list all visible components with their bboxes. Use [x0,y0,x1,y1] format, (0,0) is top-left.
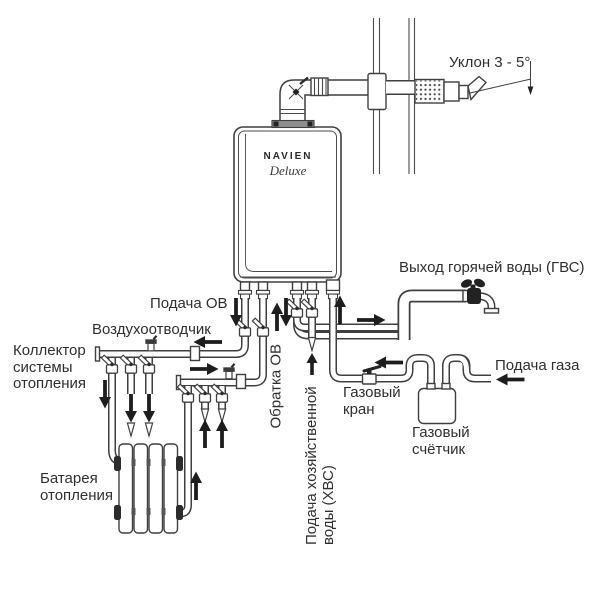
wall-flange [368,74,386,110]
gas-meter-icon [419,384,456,424]
air-vent-label: Воздухоотводчик [92,322,211,339]
diagram-canvas [0,0,600,600]
flow-arrow-up [199,420,211,449]
radiator-port [114,505,121,520]
boiler-brand-logo: NAVIEN [258,151,318,162]
ch-return-label: Обратка ОВ [269,343,286,429]
gas-meter-label: Газовый счётчик [412,425,470,458]
ch-supply-label: Подача ОВ [150,296,228,313]
flue-coupling [311,78,328,96]
flow-arrow-down [125,394,137,423]
radiator-label: Батарея отопления [40,471,113,504]
flue-terminal-tip [468,77,486,100]
radiator-port [114,456,121,471]
collector-coupling [237,375,246,389]
boiler [234,121,341,299]
boiler-installation-diagram: Уклон 3 - 5° Выход горячей воды (ГВС) По… [0,0,600,600]
radiator-port [176,505,183,520]
dhw-out-label: Выход горячей воды (ГВС) [399,260,585,277]
collector-coupling [191,347,200,361]
flow-arrow-up [307,353,318,375]
radiator-port [176,456,183,471]
dhw-line [286,277,498,340]
flow-arrow-down [143,394,155,423]
gas-valve-label: Газовый кран [343,385,401,418]
cold-water-label: Подача хозяйственной воды (ХВС) [304,383,338,545]
gas-supply-label: Подача газа [495,358,579,375]
flow-arrow-left [496,374,525,386]
slope-label: Уклон 3 - 5° [449,55,530,72]
air-vent-icon [224,364,235,379]
flue-corrugated-section [415,80,444,104]
manifold-label: Коллектор системы отопления [13,343,86,393]
boiler-model-logo: Deluxe [262,163,314,179]
flue-base-flange [272,121,314,128]
flow-arrow-up [216,420,228,449]
radiator [114,444,183,533]
flow-arrow-right [190,363,219,375]
collector-end-cap [96,347,100,361]
faucet-icon [460,277,499,313]
